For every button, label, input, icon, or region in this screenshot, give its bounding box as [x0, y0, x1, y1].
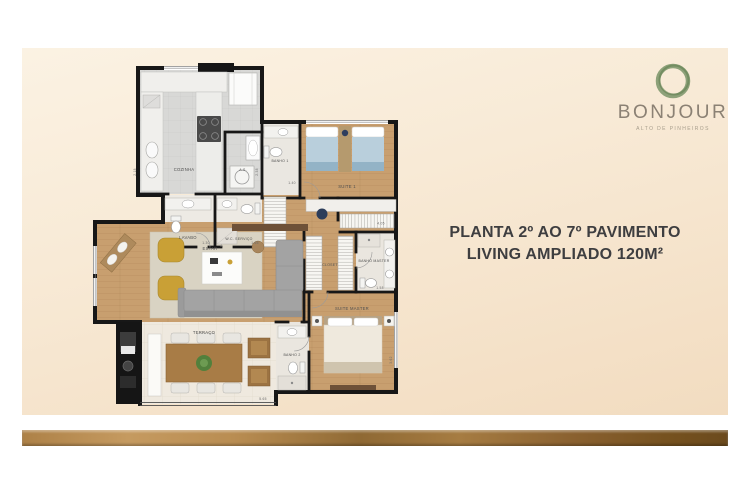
floor-plan: COZINHA A.S. BANHO 1 SUITE 1 LAVABO W.C.…	[88, 58, 410, 412]
duct-shaft	[198, 63, 234, 72]
room-label-wc: W.C. SERVIÇO	[225, 237, 252, 241]
room-label-closet: CLOSET	[322, 263, 338, 267]
dim-terraco: 5.65	[259, 397, 266, 401]
plan-title: PLANTA 2º AO 7º PAVIMENTO LIVING AMPLIAD…	[412, 222, 718, 266]
kitchen-sink	[146, 142, 158, 158]
desk-pouf	[317, 209, 328, 220]
dim-suite1: 4.05	[377, 222, 384, 226]
hall-shelf	[264, 197, 286, 247]
dim-lavabo: 1.30	[202, 241, 209, 245]
dim-as: 2.38	[255, 168, 259, 175]
barbecue-column	[116, 322, 140, 404]
brand-name: BONJOUR	[595, 102, 750, 124]
room-label-suite-master: SUITE MASTER	[335, 306, 369, 311]
dim-cozinha: 2.18	[133, 168, 137, 175]
room-label-terraco: TERRAÇO	[193, 330, 216, 335]
room-label-banho1: BANHO 1	[271, 159, 288, 163]
dim-banho-master: 1.58	[376, 286, 383, 290]
tv-rack	[330, 385, 376, 390]
refrigerator	[229, 73, 257, 105]
dim-wc: 1.65	[251, 241, 258, 245]
room-label-as: A.S.	[239, 168, 247, 172]
coffee-table	[202, 252, 242, 284]
dim-suite-master: 3.62	[389, 356, 393, 363]
plan-title-line1: PLANTA 2º AO 7º PAVIMENTO	[412, 222, 718, 244]
dim-banho1: 1.40	[288, 181, 295, 185]
room-label-estar: ESTAR	[203, 246, 218, 251]
room-label-banho2: BANHO 2	[283, 353, 300, 357]
armchair	[158, 238, 184, 262]
room-label-suite1: SUITE 1	[338, 184, 356, 189]
plan-title-line2: LIVING AMPLIADO 120M²	[412, 244, 718, 266]
toilet	[270, 147, 282, 156]
room-label-banho-master: BANHO MASTER	[358, 259, 389, 263]
room-label-cozinha: COZINHA	[174, 167, 195, 172]
brand-tagline: ALTO DE PINHEIROS	[595, 126, 750, 132]
logo-ring-icon	[595, 58, 750, 104]
room-label-lavabo: LAVABO	[179, 235, 197, 240]
terrace-bench	[148, 334, 161, 396]
bronze-bar	[22, 430, 728, 446]
tv-console	[232, 224, 308, 231]
presentation-slide: COZINHA A.S. BANHO 1 SUITE 1 LAVABO W.C.…	[0, 0, 750, 500]
logo: BONJOUR ALTO DE PINHEIROS	[595, 58, 750, 132]
